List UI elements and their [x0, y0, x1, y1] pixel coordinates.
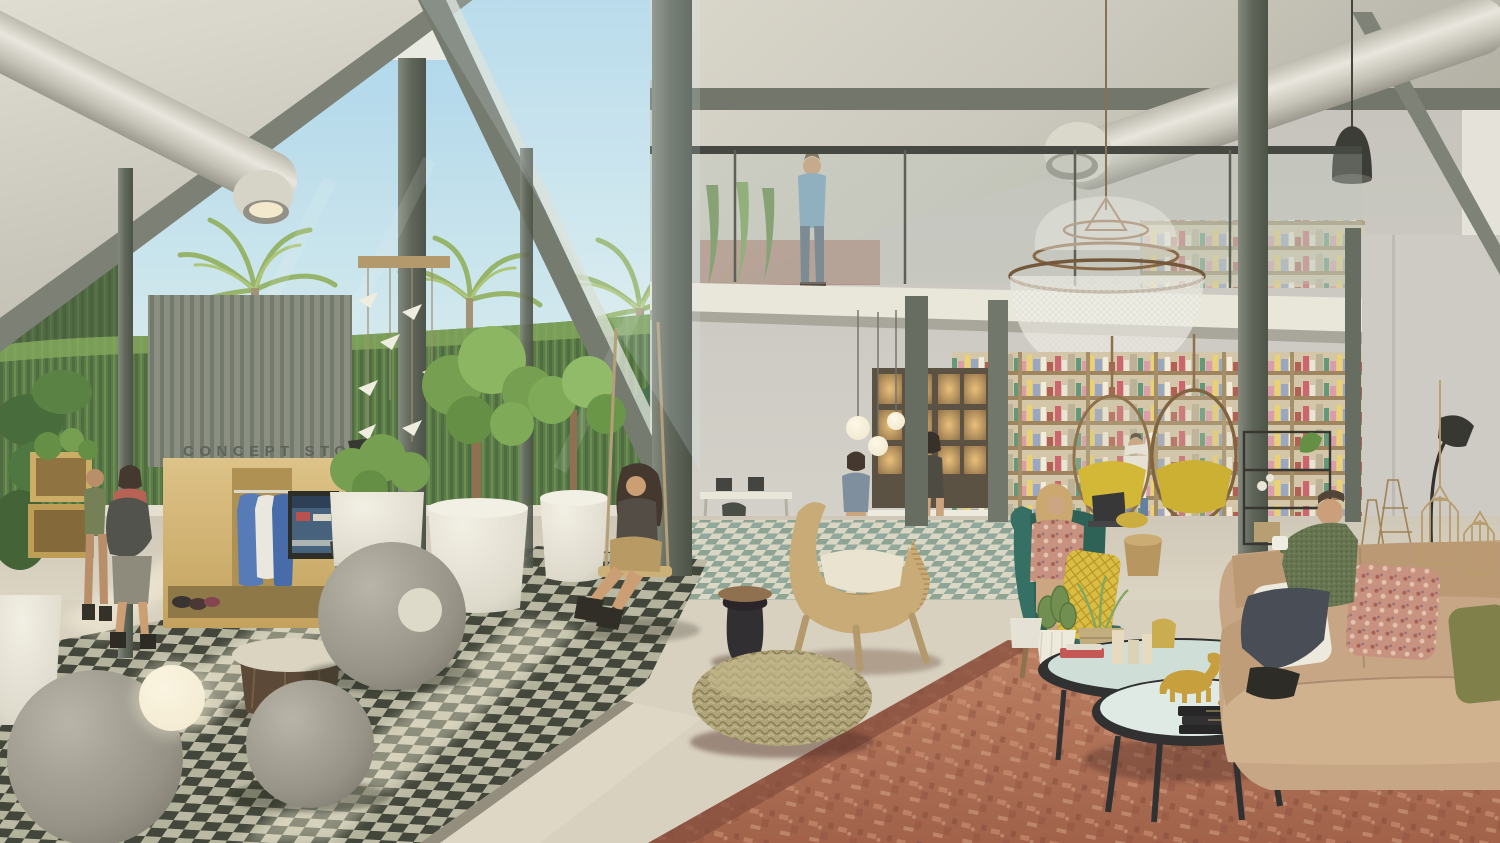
architectural-rendering: CONCEPT STORE — [0, 0, 1500, 843]
atmosphere — [0, 0, 1500, 843]
scene-canvas: CONCEPT STORE — [0, 0, 1500, 843]
warm-light-wash — [0, 0, 1500, 843]
